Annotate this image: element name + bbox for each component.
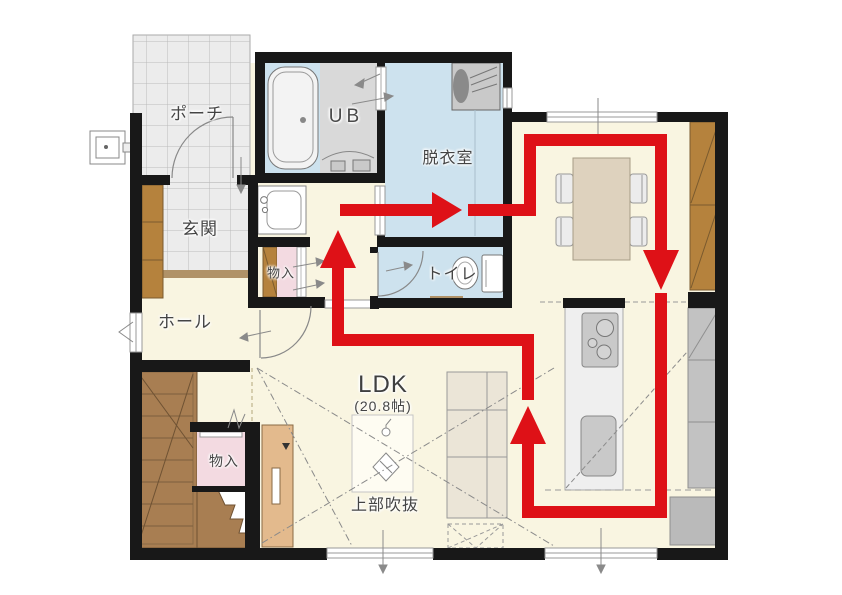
dining-chair [556, 174, 573, 203]
sofa [447, 372, 507, 518]
window-bottom-left [327, 548, 433, 558]
floor-plan-drawing [0, 0, 842, 595]
label-unit-bath: UB [329, 106, 363, 128]
refrigerator [670, 497, 717, 545]
kitchen-island [565, 303, 623, 490]
label-entrance: 玄関 [182, 215, 218, 240]
dining-chair [630, 217, 647, 246]
washbasin [258, 186, 306, 234]
window-top [547, 112, 657, 122]
label-storage-upper: 物入 [267, 263, 295, 282]
sink [581, 416, 616, 476]
dining-table [573, 158, 630, 260]
counter [688, 308, 718, 488]
label-toilet: トイレ [426, 260, 477, 284]
sliding-door-ub [376, 67, 386, 110]
bath-stool [331, 161, 345, 171]
label-hall: ホール [158, 308, 212, 333]
bathtub [268, 67, 318, 169]
label-storage-lower: 物入 [209, 451, 239, 471]
void-area [352, 415, 413, 492]
label-void: 上部吹抜 [351, 491, 419, 515]
label-porch: ポーチ [170, 100, 224, 125]
floor-plan: ポーチ 玄関 UB 脱衣室 トイレ 物入 ホール 物入 LDK (20.8帖) … [0, 0, 842, 595]
dining-chair [630, 174, 647, 203]
entrance-step [163, 270, 250, 278]
window-left [130, 313, 142, 352]
outdoor-faucet [90, 131, 131, 164]
label-dressing-room: 脱衣室 [422, 144, 473, 168]
label-ldk: LDK [358, 371, 408, 399]
dining-chair [556, 217, 573, 246]
shoe-cabinet [142, 185, 163, 298]
tv-board [262, 425, 293, 547]
label-ldk-size: (20.8帖) [354, 396, 412, 416]
wall-cabinet [690, 122, 718, 290]
window-dressing [503, 88, 512, 108]
tub-faucet [300, 117, 306, 123]
washing-machine [452, 63, 500, 110]
shower-item [353, 160, 370, 171]
